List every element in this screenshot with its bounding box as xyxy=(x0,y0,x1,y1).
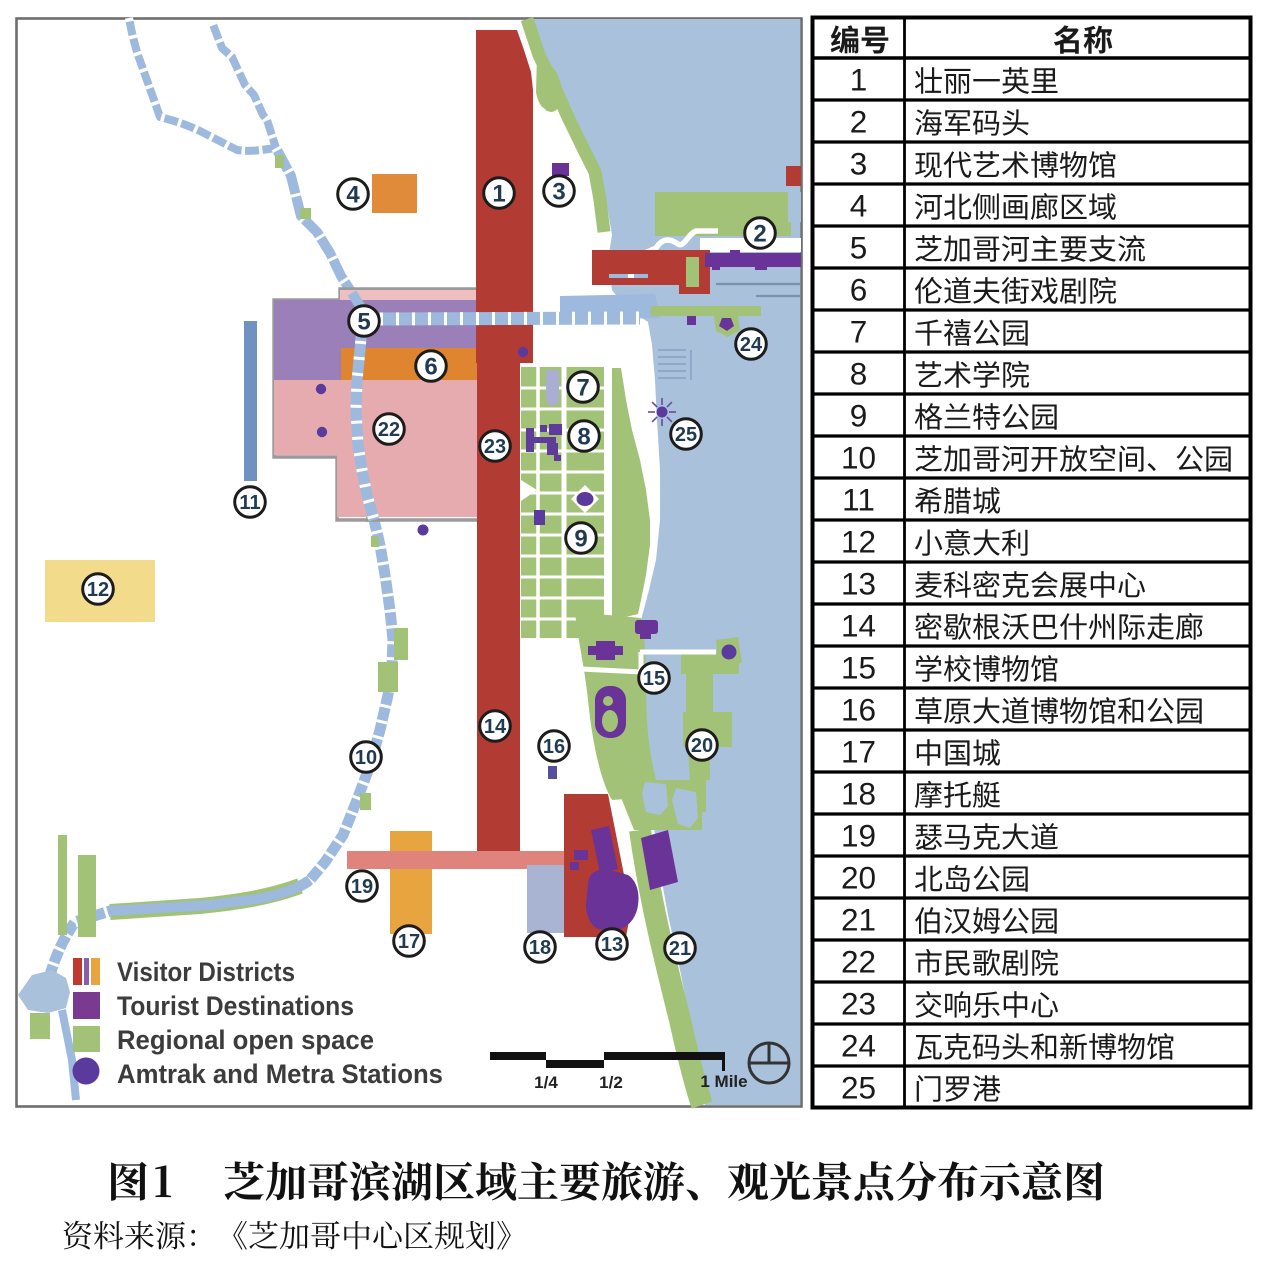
svg-text:Regional open space: Regional open space xyxy=(117,1025,374,1055)
svg-text:21: 21 xyxy=(669,938,691,960)
svg-text:24: 24 xyxy=(841,1028,876,1064)
svg-text:6: 6 xyxy=(424,354,437,381)
svg-text:12: 12 xyxy=(841,524,876,560)
svg-text:2: 2 xyxy=(753,221,766,248)
svg-text:24: 24 xyxy=(740,334,763,356)
svg-text:1/2: 1/2 xyxy=(599,1073,623,1092)
svg-text:14: 14 xyxy=(841,608,876,644)
svg-text:13: 13 xyxy=(601,934,623,956)
svg-text:4: 4 xyxy=(850,188,868,224)
svg-text:11: 11 xyxy=(239,492,260,514)
svg-text:17: 17 xyxy=(841,734,876,770)
svg-text:Amtrak and Metra Stations: Amtrak and Metra Stations xyxy=(117,1059,443,1089)
svg-text:17: 17 xyxy=(398,931,420,953)
svg-text:7: 7 xyxy=(850,314,868,350)
svg-text:3: 3 xyxy=(850,146,868,182)
svg-text:12: 12 xyxy=(87,579,109,601)
svg-text:22: 22 xyxy=(378,419,400,441)
svg-text:2: 2 xyxy=(850,104,868,140)
svg-text:21: 21 xyxy=(841,902,876,938)
svg-text:22: 22 xyxy=(841,944,876,980)
svg-text:1: 1 xyxy=(850,62,868,98)
svg-text:23: 23 xyxy=(841,986,876,1022)
svg-text:9: 9 xyxy=(850,398,868,434)
svg-text:19: 19 xyxy=(841,818,876,854)
svg-text:13: 13 xyxy=(841,566,876,602)
svg-text:7: 7 xyxy=(576,375,589,402)
svg-text:25: 25 xyxy=(675,424,697,446)
svg-text:1/4: 1/4 xyxy=(534,1073,558,1092)
svg-text:3: 3 xyxy=(552,179,565,206)
svg-text:11: 11 xyxy=(842,482,875,518)
svg-text:5: 5 xyxy=(357,309,370,336)
svg-text:15: 15 xyxy=(643,668,665,690)
svg-text:25: 25 xyxy=(841,1070,876,1106)
svg-text:6: 6 xyxy=(850,272,868,308)
svg-text:20: 20 xyxy=(841,860,876,896)
svg-text:18: 18 xyxy=(529,937,551,959)
svg-text:16: 16 xyxy=(841,692,876,728)
svg-text:5: 5 xyxy=(850,230,868,266)
svg-text:15: 15 xyxy=(841,650,876,686)
svg-text:20: 20 xyxy=(691,735,713,757)
svg-text:Tourist Destinations: Tourist Destinations xyxy=(117,991,354,1021)
svg-text:23: 23 xyxy=(484,436,506,458)
svg-text:10: 10 xyxy=(841,440,876,476)
svg-text:14: 14 xyxy=(484,716,507,738)
svg-text:1: 1 xyxy=(492,181,505,208)
svg-text:4: 4 xyxy=(346,182,360,209)
svg-text:8: 8 xyxy=(577,424,590,451)
svg-text:1 Mile: 1 Mile xyxy=(700,1072,747,1091)
svg-text:8: 8 xyxy=(850,356,868,392)
svg-text:10: 10 xyxy=(355,747,377,769)
svg-text:9: 9 xyxy=(574,526,587,553)
svg-text:16: 16 xyxy=(543,736,565,758)
svg-text:Visitor Districts: Visitor Districts xyxy=(117,957,295,987)
svg-text:18: 18 xyxy=(841,776,876,812)
svg-text:19: 19 xyxy=(351,876,373,898)
